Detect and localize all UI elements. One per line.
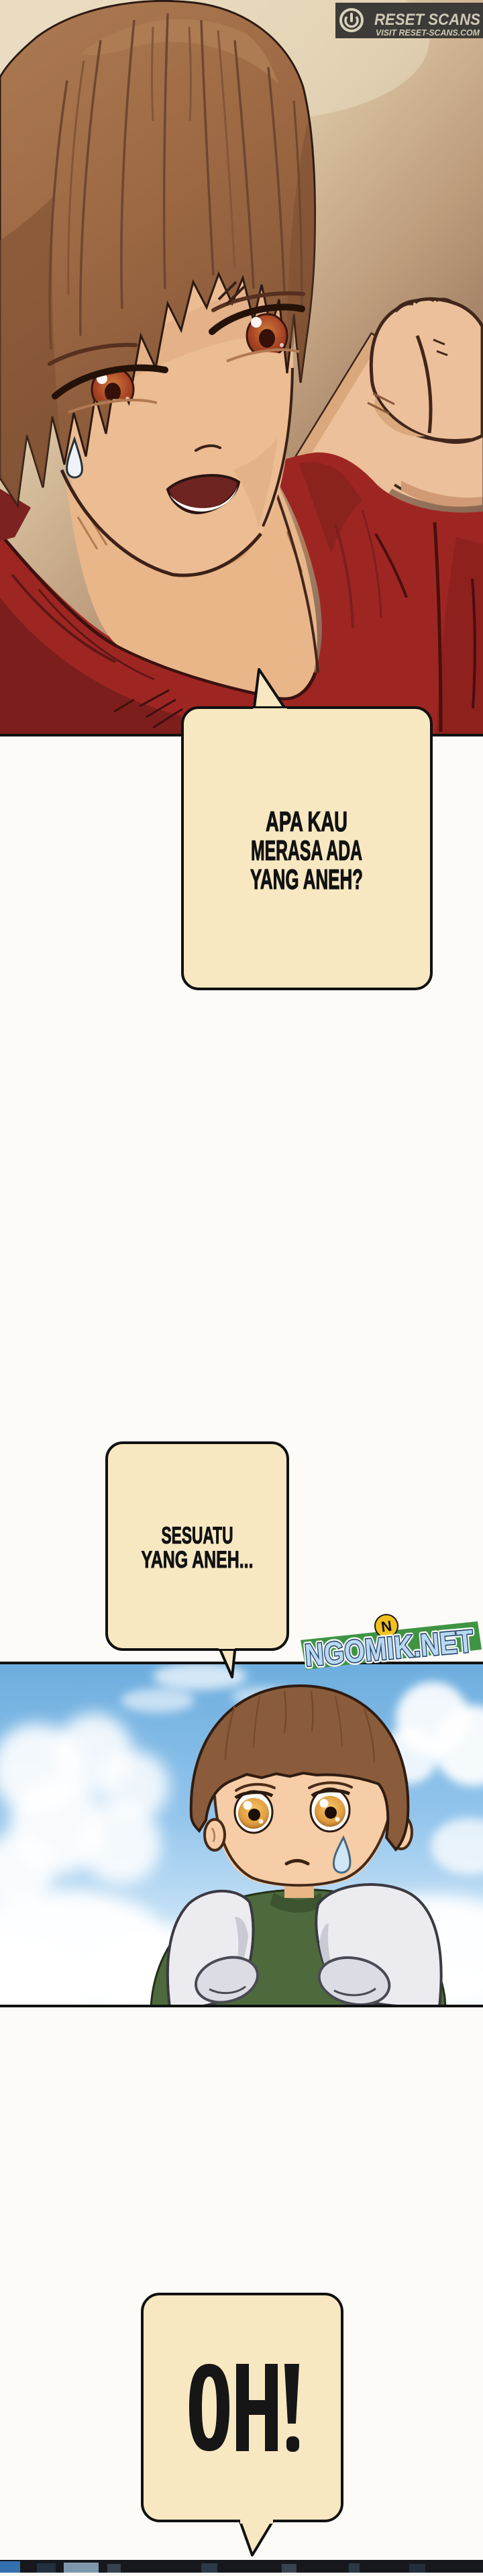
svg-text:YANG ANEH...: YANG ANEH...	[142, 1547, 254, 1573]
svg-text:MERASA ADA: MERASA ADA	[251, 834, 362, 866]
svg-text:RESET SCANS: RESET SCANS	[374, 11, 480, 29]
svg-text:APA KAU: APA KAU	[266, 806, 347, 837]
svg-text:YANG ANEH?: YANG ANEH?	[250, 863, 363, 895]
svg-text:NGOMIK.NET: NGOMIK.NET	[303, 1623, 475, 1673]
svg-text:SESUATU: SESUATU	[162, 1523, 233, 1549]
svg-text:VISIT RESET-SCANS.COM: VISIT RESET-SCANS.COM	[376, 28, 480, 38]
